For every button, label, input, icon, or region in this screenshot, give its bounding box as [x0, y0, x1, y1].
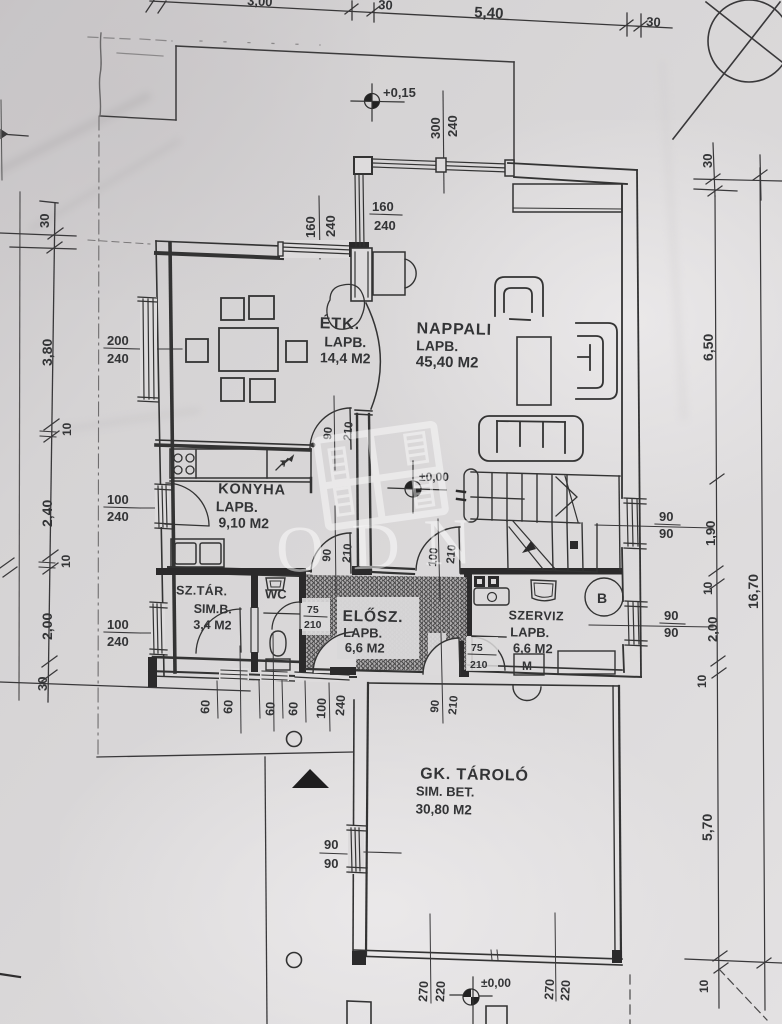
svg-text:45,40 M2: 45,40 M2 [416, 353, 479, 371]
svg-text:240: 240 [323, 215, 338, 237]
svg-text:30: 30 [35, 677, 50, 691]
svg-text:90: 90 [659, 509, 673, 524]
svg-text:240: 240 [374, 218, 396, 233]
svg-text:240: 240 [333, 695, 348, 717]
svg-text:ELŐSZ.: ELŐSZ. [342, 607, 403, 626]
svg-text:210: 210 [304, 619, 322, 631]
svg-text:240: 240 [445, 115, 460, 137]
svg-text:30: 30 [646, 14, 661, 30]
svg-text:±0,00: ±0,00 [481, 976, 511, 990]
svg-text:NAPPALI: NAPPALI [416, 320, 492, 339]
svg-text:10: 10 [59, 554, 73, 568]
svg-text:270: 270 [416, 981, 431, 1003]
svg-text:160: 160 [372, 199, 394, 214]
svg-text:SIM. BET.: SIM. BET. [416, 783, 475, 799]
svg-text:LAPB.: LAPB. [416, 337, 458, 354]
svg-text:10: 10 [695, 674, 709, 688]
svg-text:90: 90 [429, 699, 442, 713]
svg-text:100: 100 [107, 617, 129, 632]
svg-text:ÉTK.: ÉTK. [319, 313, 360, 333]
svg-text:90: 90 [324, 837, 338, 852]
svg-text:100: 100 [107, 492, 129, 507]
svg-text:2,00: 2,00 [39, 613, 55, 640]
svg-text:10: 10 [60, 422, 74, 436]
svg-text:60: 60 [221, 699, 236, 714]
svg-text:270: 270 [542, 979, 557, 1001]
svg-text:240: 240 [107, 509, 129, 524]
svg-text:240: 240 [107, 634, 129, 649]
svg-text:30: 30 [378, 0, 393, 13]
svg-text:6,6 M2: 6,6 M2 [345, 640, 385, 656]
svg-text:D: D [351, 510, 401, 585]
svg-text:90: 90 [659, 526, 673, 541]
svg-text:240: 240 [107, 351, 129, 366]
svg-text:+0,15: +0,15 [383, 85, 416, 100]
svg-text:LAPB.: LAPB. [216, 498, 258, 515]
svg-text:90: 90 [664, 625, 678, 640]
svg-text:5,70: 5,70 [699, 814, 715, 841]
svg-text:210: 210 [447, 695, 461, 715]
svg-text:KONYHA: KONYHA [218, 481, 286, 498]
svg-text:60: 60 [263, 701, 278, 716]
svg-text:B: B [597, 590, 607, 606]
svg-text:9,10 M2: 9,10 M2 [218, 514, 269, 531]
svg-text:75: 75 [307, 604, 319, 616]
svg-text:14,4 M2: 14,4 M2 [320, 349, 371, 366]
svg-text:2,40: 2,40 [39, 500, 55, 527]
svg-text:30: 30 [700, 154, 715, 168]
svg-text:220: 220 [558, 980, 573, 1002]
svg-text:100: 100 [314, 698, 329, 720]
svg-text:SZ.TÁR.: SZ.TÁR. [176, 582, 228, 598]
svg-text:60: 60 [286, 701, 301, 716]
svg-text:6,50: 6,50 [700, 334, 716, 361]
svg-text:10: 10 [697, 979, 711, 993]
svg-text:2,00: 2,00 [705, 617, 720, 642]
svg-text:60: 60 [198, 699, 213, 714]
svg-text:SZERVIZ: SZERVIZ [508, 608, 564, 623]
svg-text:N: N [423, 505, 473, 580]
svg-text:90: 90 [664, 608, 678, 623]
svg-text:16,70: 16,70 [745, 574, 761, 609]
svg-text:200: 200 [107, 333, 129, 348]
svg-text:210: 210 [470, 659, 488, 671]
svg-text:WC: WC [265, 586, 288, 601]
svg-text:GK. TÁROLÓ: GK. TÁROLÓ [420, 763, 529, 784]
svg-text:LAPB.: LAPB. [510, 624, 549, 640]
svg-text:300: 300 [428, 117, 443, 139]
svg-text:3,00: 3,00 [247, 0, 273, 9]
svg-text:3,80: 3,80 [39, 339, 55, 366]
svg-text:10: 10 [701, 581, 715, 595]
svg-text:LAPB.: LAPB. [324, 333, 366, 350]
svg-text:5,40: 5,40 [474, 4, 504, 23]
svg-text:1,90: 1,90 [703, 521, 718, 546]
svg-text:75: 75 [471, 642, 483, 654]
svg-text:6,6 M2: 6,6 M2 [513, 640, 553, 656]
svg-text:3,4 M2: 3,4 M2 [193, 618, 232, 633]
svg-text:O: O [275, 512, 325, 587]
svg-text:LAPB.: LAPB. [343, 625, 382, 641]
svg-text:160: 160 [303, 216, 318, 238]
svg-text:M: M [522, 659, 532, 673]
svg-text:220: 220 [433, 981, 448, 1003]
svg-text:30: 30 [37, 214, 52, 228]
svg-text:30,80 M2: 30,80 M2 [415, 801, 472, 817]
svg-text:SIM.B.: SIM.B. [194, 602, 232, 617]
svg-text:90: 90 [324, 856, 338, 871]
